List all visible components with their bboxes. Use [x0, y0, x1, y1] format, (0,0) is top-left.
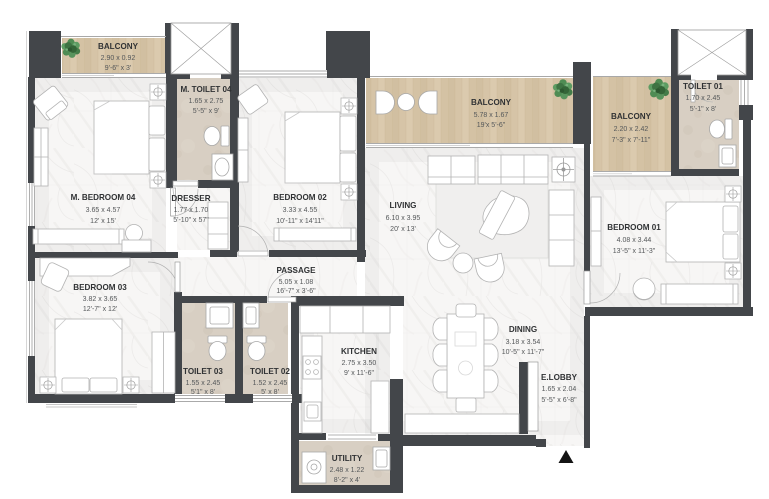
- svg-text:4.08 x 3.44: 4.08 x 3.44: [617, 237, 652, 244]
- svg-text:5'-1" x 8': 5'-1" x 8': [690, 106, 717, 113]
- svg-text:BALCONY: BALCONY: [471, 98, 512, 107]
- svg-text:E.LOBBY: E.LOBBY: [541, 373, 578, 382]
- svg-text:9'-6" x 3': 9'-6" x 3': [105, 65, 132, 72]
- svg-text:1.70 x 2.45: 1.70 x 2.45: [686, 95, 721, 102]
- svg-text:5'-5" x 6'-8": 5'-5" x 6'-8": [541, 397, 577, 404]
- svg-text:2.75 x 3.50: 2.75 x 3.50: [342, 360, 377, 367]
- svg-text:LIVING: LIVING: [390, 201, 417, 210]
- svg-text:3.65 x 4.57: 3.65 x 4.57: [86, 207, 121, 214]
- svg-text:TOILET 02: TOILET 02: [250, 367, 290, 376]
- svg-text:2.90 x 0.92: 2.90 x 0.92: [101, 55, 136, 62]
- svg-text:M. TOILET 04: M. TOILET 04: [180, 85, 232, 94]
- svg-text:DRESSER: DRESSER: [171, 194, 210, 203]
- svg-text:8'-2" x 4': 8'-2" x 4': [334, 477, 361, 484]
- svg-text:3.33 x 4.55: 3.33 x 4.55: [283, 207, 318, 214]
- svg-text:20' x 13': 20' x 13': [390, 226, 416, 233]
- svg-text:6.10 x 3.95: 6.10 x 3.95: [386, 215, 421, 222]
- svg-text:5'1" x 8': 5'1" x 8': [191, 389, 215, 396]
- svg-text:12' x 15': 12' x 15': [90, 218, 116, 225]
- svg-text:10'-5" x 11'-7": 10'-5" x 11'-7": [502, 349, 545, 356]
- svg-text:TOILET 03: TOILET 03: [183, 367, 223, 376]
- svg-text:TOILET 01: TOILET 01: [683, 82, 723, 91]
- svg-text:10'-11" x 14'11": 10'-11" x 14'11": [276, 218, 324, 225]
- svg-text:3.82 x 3.65: 3.82 x 3.65: [83, 296, 118, 303]
- svg-text:BEDROOM 01: BEDROOM 01: [607, 223, 661, 232]
- svg-text:BALCONY: BALCONY: [98, 42, 139, 51]
- svg-text:BEDROOM 03: BEDROOM 03: [73, 283, 127, 292]
- svg-text:5'-5" x 9': 5'-5" x 9': [193, 108, 220, 115]
- svg-text:1.65 x 2.75: 1.65 x 2.75: [189, 98, 224, 105]
- svg-text:5.78 x 1.67: 5.78 x 1.67: [474, 112, 509, 119]
- svg-text:5'-10" x 57": 5'-10" x 57": [173, 217, 209, 224]
- svg-text:7'-3" x 7'-11": 7'-3" x 7'-11": [612, 137, 651, 144]
- svg-text:12'-7" x 12': 12'-7" x 12': [83, 306, 117, 313]
- svg-text:3.18 x 3.54: 3.18 x 3.54: [506, 339, 541, 346]
- svg-text:1.77 x 1.70: 1.77 x 1.70: [174, 207, 209, 214]
- svg-text:2.20 x 2.42: 2.20 x 2.42: [614, 126, 649, 133]
- svg-text:BEDROOM 02: BEDROOM 02: [273, 193, 327, 202]
- svg-text:2.48 x 1.22: 2.48 x 1.22: [330, 467, 365, 474]
- svg-text:1.52 x 2.45: 1.52 x 2.45: [253, 380, 288, 387]
- svg-text:1.65 x 2.04: 1.65 x 2.04: [542, 386, 577, 393]
- svg-text:PASSAGE: PASSAGE: [277, 266, 317, 275]
- svg-text:13'-5" x 11'-3": 13'-5" x 11'-3": [613, 248, 656, 255]
- svg-text:1.55 x 2.45: 1.55 x 2.45: [186, 380, 221, 387]
- svg-text:19'x 5'-6": 19'x 5'-6": [477, 122, 506, 129]
- svg-text:5' x 8': 5' x 8': [261, 389, 279, 396]
- svg-text:UTILITY: UTILITY: [332, 454, 363, 463]
- svg-text:16'-7" x 3'-6": 16'-7" x 3'-6": [276, 288, 316, 295]
- svg-text:M. BEDROOM 04: M. BEDROOM 04: [71, 193, 136, 202]
- svg-text:KITCHEN: KITCHEN: [341, 347, 377, 356]
- svg-text:9' x 11'-6": 9' x 11'-6": [344, 370, 374, 377]
- svg-text:DINING: DINING: [509, 325, 537, 334]
- svg-text:BALCONY: BALCONY: [611, 112, 652, 121]
- svg-text:5.05 x 1.08: 5.05 x 1.08: [279, 279, 314, 286]
